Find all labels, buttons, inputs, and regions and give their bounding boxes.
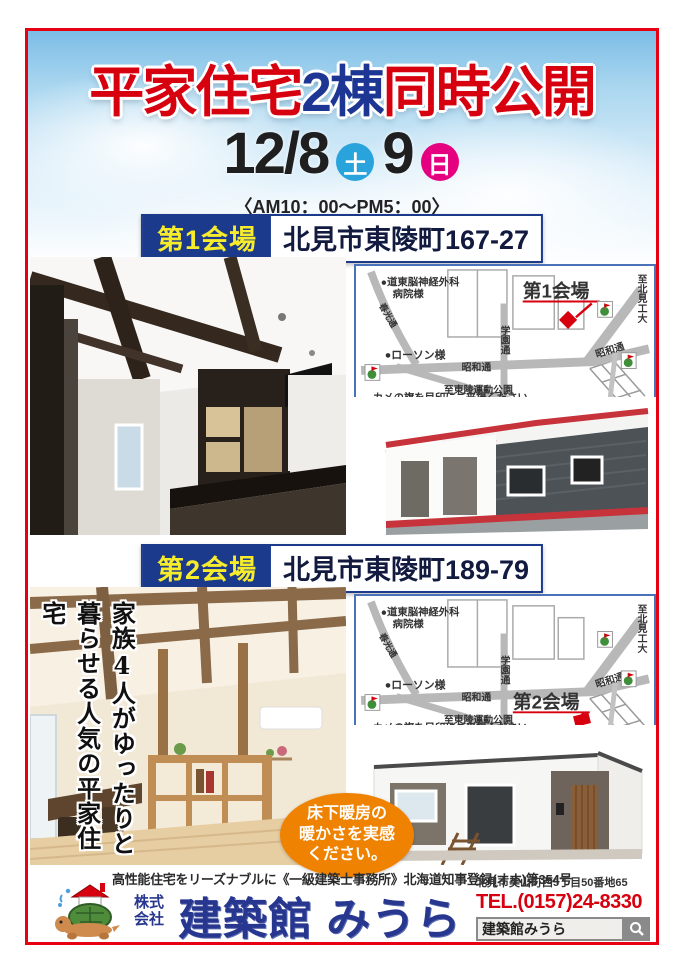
map2-venue-label: 第2会場 (513, 691, 580, 712)
company-type-line1: 株式 (134, 895, 164, 912)
map-label-hospital2: 病院様 (393, 288, 425, 301)
title-part-doujikoukai: 同時公開 (383, 61, 595, 123)
map-label-road-showa: 昭和通 (462, 360, 492, 373)
company-address: 北見市美山町西5丁目50番地65 (476, 874, 654, 890)
venue2-label: 第2会場 (143, 546, 271, 591)
map-label-univ: 至北見工大 (636, 604, 649, 654)
floor-heating-badge: 床下暖房の 暖かさを実感 ください。 (280, 793, 414, 877)
venue1-map-image: ●道東脳神経外科 病院様 ●ローソン様 昭和通 昭和通 学園通 春光通 至東陵運… (356, 266, 654, 404)
date-second: 9 (382, 125, 412, 183)
badge-line1: 床下暖房の (280, 804, 414, 825)
company-type: 株式 会社 (134, 895, 164, 928)
map-label-hospital: ●道東脳神経外科 (381, 606, 460, 619)
venue1-map: ●道東脳神経外科 病院様 ●ローソン様 昭和通 昭和通 学園通 春光通 至東陵運… (354, 264, 656, 406)
date-main: 12/8 (223, 125, 328, 183)
map1-venue-label: 第1会場 (523, 281, 590, 302)
flyer-page: 平家住宅2棟同時公開 12/8 土 9 日 〈AM10：00〜PM5：00〉 第… (0, 0, 684, 968)
turtle-flag-icon (365, 365, 380, 381)
exterior-photo-1-image (346, 397, 656, 535)
map-label-road-gakuen: 学園通 (499, 324, 511, 356)
flyer-frame: 平家住宅2棟同時公開 12/8 土 9 日 〈AM10：00〜PM5：00〉 第… (25, 28, 659, 945)
venue2-address: 北見市東陵町189-79 (271, 546, 541, 591)
venue2-map-image: ●道東脳神経外科 病院様 ●ローソン様 昭和通 昭和通 学園通 春光通 至東陵運… (356, 596, 654, 734)
search-input[interactable] (476, 917, 624, 941)
search-button[interactable] (624, 917, 650, 941)
map-label-hospital: ●道東脳神経外科 (381, 276, 460, 289)
search-box (476, 917, 654, 941)
venue1-banner: 第1会場 北見市東陵町167-27 (141, 214, 543, 263)
company-type-line2: 会社 (134, 912, 164, 929)
turtle-flag-icon (621, 353, 636, 369)
venue2-banner: 第2会場 北見市東陵町189-79 (141, 544, 543, 593)
title-part-hiraya: 平家住宅 (89, 61, 301, 123)
exterior-photo-1 (346, 397, 656, 535)
sunday-badge: 日 (421, 143, 459, 181)
turtle-mascot-icon (54, 881, 120, 941)
badge-line2: 暖かさを実感 (280, 825, 414, 846)
turtle-flag-icon (621, 671, 636, 687)
turtle-flag-icon (365, 695, 380, 711)
saturday-badge: 土 (336, 143, 374, 181)
magnifier-icon (629, 921, 645, 937)
badge-line3: ください。 (280, 845, 414, 866)
event-date: 12/8 土 9 日 (28, 125, 656, 183)
title-part-2tou: 2棟 (301, 61, 383, 123)
map-label-road-showa: 昭和通 (462, 690, 492, 703)
venue1-address: 北見市東陵町167-27 (271, 216, 541, 261)
venue2-map: ●道東脳神経外科 病院様 ●ローソン様 昭和通 昭和通 学園通 春光通 至東陵運… (354, 594, 656, 736)
map-label-hospital2: 病院様 (393, 618, 425, 631)
interior-photo-1 (30, 257, 346, 535)
vertical-copy-line1: 家族4人がゆったりと (104, 601, 139, 869)
interior-photo-1-image (30, 257, 346, 535)
footer-contact: 北見市美山町西5丁目50番地65 TEL.(0157)24-8330 (476, 874, 654, 941)
map-label-lawson: ●ローソン様 (385, 678, 446, 692)
turtle-flag-icon (598, 631, 613, 647)
venue1-label: 第1会場 (143, 216, 271, 261)
vertical-copy-line2: 暮らせる人気の平家住宅 (34, 601, 104, 869)
turtle-flag-icon (598, 301, 613, 317)
map-label-road-gakuen: 学園通 (499, 654, 511, 686)
company-name: 建築館 みうら (178, 883, 461, 945)
vertical-copy: 家族4人がゆったりと 暮らせる人気の平家住宅 (34, 601, 138, 869)
map-label-univ: 至北見工大 (636, 274, 649, 324)
phone-number: TEL.(0157)24-8330 (476, 891, 654, 914)
map-label-lawson: ●ローソン様 (385, 348, 446, 362)
main-title: 平家住宅2棟同時公開 (28, 47, 656, 127)
